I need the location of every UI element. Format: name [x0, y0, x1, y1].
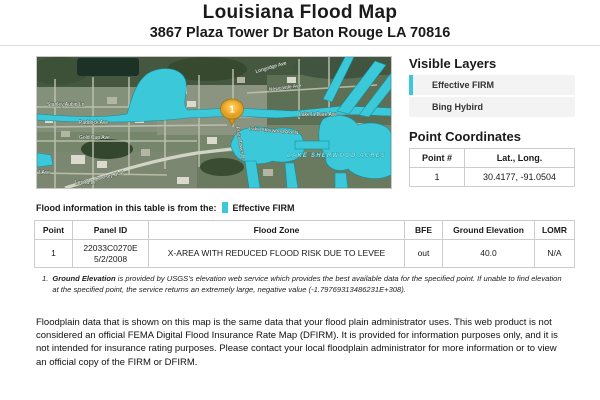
- flood-map-view[interactable]: Stanley Aubin Ln Paddock Ave Gold Cup Av…: [36, 56, 392, 189]
- footnote-body: Ground Elevation is provided by USGS's e…: [52, 274, 564, 295]
- map-canvas: Stanley Aubin Ln Paddock Ave Gold Cup Av…: [37, 57, 391, 188]
- header-divider: [0, 45, 600, 46]
- col-point: Point: [35, 221, 73, 240]
- footnote-term: Ground Elevation: [52, 274, 115, 283]
- col-flood-zone: Flood Zone: [149, 221, 405, 240]
- cell-bfe: out: [405, 240, 443, 268]
- footnote-number: 1.: [42, 274, 48, 295]
- cell-panel-id: 22033C0270E 5/2/2008: [73, 240, 149, 268]
- layer-indicator: [409, 97, 413, 117]
- flood-table-row: 1 22033C0270E 5/2/2008 X-AREA WITH REDUC…: [35, 240, 575, 268]
- page-subtitle: 3867 Plaza Tower Dr Baton Rouge LA 70816: [0, 25, 600, 41]
- side-panel: Visible Layers Effective FIRM Bing Hybir…: [409, 56, 575, 189]
- cell-point: 1: [35, 240, 73, 268]
- marker-number: 1: [229, 104, 235, 115]
- active-layer-indicator: [409, 75, 413, 95]
- street-label: Stanley Aubin Ln: [47, 102, 85, 108]
- page-title: Louisiana Flood Map: [0, 2, 600, 24]
- ground-elevation-footnote: 1. Ground Elevation is provided by USGS'…: [42, 274, 564, 295]
- col-bfe: BFE: [405, 221, 443, 240]
- col-lomr: LOMR: [535, 221, 575, 240]
- layer-item-bing-hybrid[interactable]: Bing Hybird: [409, 97, 575, 117]
- col-panel-id: Panel ID: [73, 221, 149, 240]
- coord-col-latlong: Lat., Long.: [465, 149, 575, 168]
- street-label: Paddock Ave: [79, 120, 108, 126]
- coord-latlong-value: 30.4177, -91.0504: [465, 168, 575, 187]
- point-coordinates-heading: Point Coordinates: [409, 129, 575, 144]
- footnote-text: is provided by USGS's elevation web serv…: [52, 274, 561, 293]
- lake-area-label: LAKE SHERWOOD ACRES: [287, 153, 386, 159]
- layer-label: Effective FIRM: [432, 80, 494, 90]
- disclaimer-paragraph: Floodplain data that is shown on this ma…: [36, 316, 560, 369]
- coord-point-value: 1: [410, 168, 465, 187]
- flood-info-prefix: Flood information in this table is from …: [36, 203, 217, 213]
- layer-item-effective-firm[interactable]: Effective FIRM: [409, 75, 575, 95]
- cell-ground-elevation: 40.0: [443, 240, 535, 268]
- layer-list: Effective FIRM Bing Hybird: [409, 75, 575, 117]
- page-header: Louisiana Flood Map 3867 Plaza Tower Dr …: [0, 0, 600, 41]
- firm-layer-swatch: [222, 202, 228, 213]
- cell-flood-zone: X-AREA WITH REDUCED FLOOD RISK DUE TO LE…: [149, 240, 405, 268]
- visible-layers-heading: Visible Layers: [409, 56, 575, 71]
- street-label: Letord Dr: [75, 180, 96, 186]
- col-ground-elevation: Ground Elevation: [443, 221, 535, 240]
- map-pond: [77, 58, 139, 76]
- street-label: Gold Cup Ave: [79, 135, 110, 141]
- layer-label: Bing Hybird: [432, 102, 483, 112]
- street-label: I Ave: [39, 170, 50, 176]
- flood-data-table: Point Panel ID Flood Zone BFE Ground Ele…: [34, 220, 575, 268]
- street-label: Lake la Dare Ave: [299, 112, 337, 118]
- flood-info-source: Effective FIRM: [233, 203, 295, 213]
- coord-col-point: Point #: [410, 149, 465, 168]
- cell-lomr: N/A: [535, 240, 575, 268]
- flood-info-line: Flood information in this table is from …: [36, 202, 600, 213]
- coord-table-row: 1 30.4177, -91.0504: [410, 168, 575, 187]
- point-coordinates-table: Point # Lat., Long. 1 30.4177, -91.0504: [409, 148, 575, 187]
